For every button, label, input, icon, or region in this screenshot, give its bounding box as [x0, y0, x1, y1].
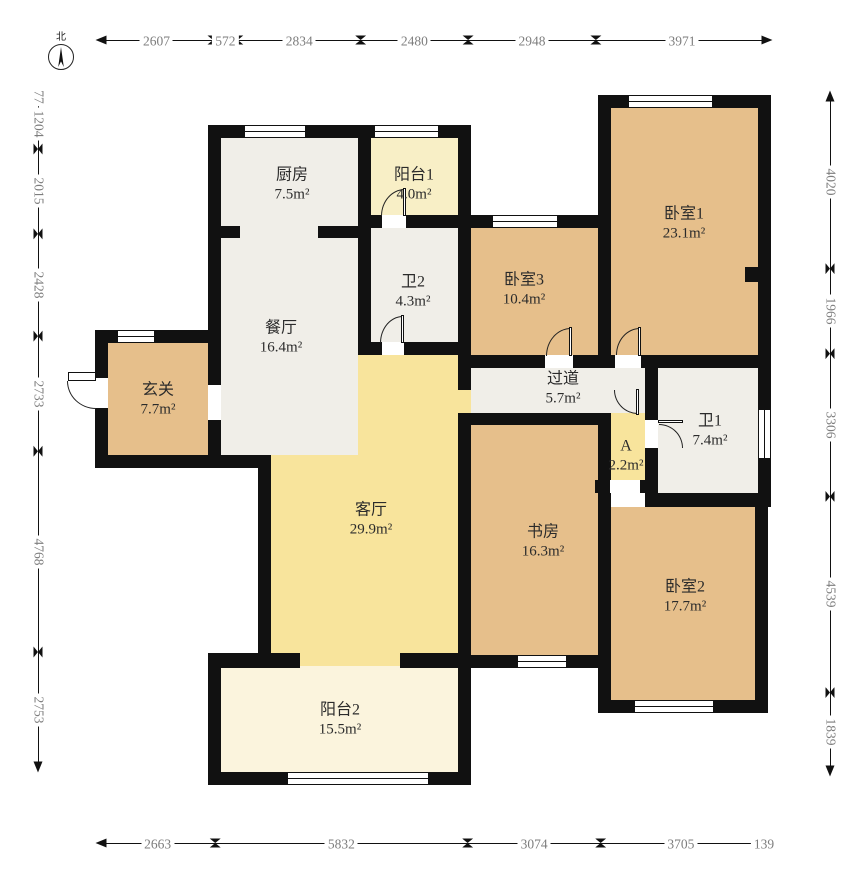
dimension-label-left-0: 77: [31, 87, 47, 107]
room-room-a-area: 2.2m²: [609, 457, 644, 476]
wall-opening: [545, 355, 573, 368]
dimension-label-bottom-3: 3705: [664, 836, 697, 852]
wall: [221, 226, 240, 238]
window-icon: [635, 700, 713, 713]
corridor-a-door-leaf-icon: [636, 389, 639, 415]
room-living-label: 客厅29.9m²: [350, 501, 392, 540]
room-living-name: 客厅: [350, 501, 392, 521]
room-bath1-label: 卫17.4m²: [693, 412, 728, 451]
room-balcony2-label: 阳台215.5m²: [319, 701, 361, 740]
room-bedroom3-area: 10.4m²: [503, 291, 545, 310]
wall-opening: [208, 385, 221, 420]
dimension-label-bottom-4: 139: [751, 836, 777, 852]
room-study-label: 书房16.3m²: [522, 523, 564, 562]
room-bedroom1-name: 卧室1: [663, 205, 705, 225]
wall: [95, 330, 221, 343]
room-bedroom2-label: 卧室217.7m²: [664, 578, 706, 617]
room-bedroom2-name: 卧室2: [664, 578, 706, 598]
floor-plan-canvas: 厨房7.5m²阳台14.0m²卫24.3m²餐厅16.4m²玄关7.7m²卧室3…: [0, 0, 868, 880]
dimension-label-bottom-0: 2663: [141, 836, 174, 852]
room-hallway-label: 玄关7.7m²: [141, 381, 176, 420]
room-bedroom3-label: 卧室310.4m²: [503, 271, 545, 310]
room-balcony1-label: 阳台14.0m²: [394, 166, 434, 205]
dimension-label-left-5: 4768: [31, 535, 47, 568]
dimension-label-right-4: 1839: [823, 716, 839, 749]
window-icon: [758, 410, 771, 458]
wall: [95, 455, 221, 468]
room-kitchen-label: 厨房7.5m²: [275, 166, 310, 205]
window-icon: [493, 215, 557, 228]
dimension-label-right-3: 4539: [823, 578, 839, 611]
dimension-arrow-top-start: [96, 36, 107, 45]
room-living-floor: [358, 355, 458, 455]
room-living-floor: [271, 455, 458, 653]
wall-opening: [611, 493, 640, 507]
entrance-door-leaf-icon: [68, 372, 96, 381]
dimension-label-left-6: 2753: [31, 694, 47, 727]
room-study-area: 16.3m²: [522, 543, 564, 562]
window-icon: [118, 330, 154, 343]
wall: [645, 493, 771, 507]
dimension-arrow-right-end: [826, 766, 835, 777]
room-corridor-label: 过道5.7m²: [546, 370, 581, 409]
wall: [358, 138, 371, 355]
dimension-label-left-1: 1204: [31, 107, 47, 140]
wall: [358, 342, 471, 355]
dimension-arrow-top-end: [762, 36, 773, 45]
dimension-label-right-1: 1966: [823, 295, 839, 328]
wall: [458, 125, 471, 355]
wall: [258, 455, 271, 666]
room-room-a-label: A2.2m²: [609, 437, 644, 476]
room-bath1-area: 7.4m²: [693, 432, 728, 451]
room-balcony2-name: 阳台2: [319, 701, 361, 721]
room-bedroom1-label: 卧室123.1m²: [663, 205, 705, 244]
dimension-label-bottom-2: 3074: [518, 836, 551, 852]
room-balcony2-area: 15.5m²: [319, 721, 361, 740]
wall: [208, 653, 300, 668]
dimension-arrow-bottom-start: [96, 839, 107, 848]
entrance-door-swing-icon: [67, 381, 96, 409]
room-bedroom1-area: 23.1m²: [663, 225, 705, 244]
dimension-label-bottom-1: 5832: [325, 836, 358, 852]
dimension-label-right-0: 4020: [823, 165, 839, 198]
dimension-label-top-1: 572: [212, 33, 238, 49]
room-bath2-name: 卫2: [396, 273, 431, 293]
wall-opening: [610, 480, 640, 493]
wall: [318, 226, 358, 238]
wall: [598, 95, 611, 368]
dimension-label-top-4: 2948: [515, 33, 548, 49]
room-bedroom2-area: 17.7m²: [664, 598, 706, 617]
room-kitchen-area: 7.5m²: [275, 186, 310, 205]
dimension-label-top-2: 2834: [283, 33, 316, 49]
dimension-arrow-left-end: [34, 762, 43, 773]
wall-opening: [645, 420, 658, 448]
room-corridor-area: 5.7m²: [546, 390, 581, 409]
window-icon: [629, 95, 712, 108]
window-icon: [518, 655, 566, 668]
window-icon: [375, 125, 438, 138]
wall-opening: [615, 355, 641, 368]
room-room-a-floor: [458, 390, 471, 413]
bath2-door-leaf-icon: [401, 315, 404, 343]
bedroom3-door-leaf-icon: [569, 327, 572, 356]
room-bath2-area: 4.3m²: [396, 293, 431, 312]
window-icon: [245, 125, 305, 138]
dimension-label-right-2: 3306: [823, 409, 839, 442]
room-hallway-area: 7.7m²: [141, 401, 176, 420]
room-study-name: 书房: [522, 523, 564, 543]
room-living-area: 29.9m²: [350, 521, 392, 540]
wall: [458, 368, 471, 390]
dimension-label-top-5: 3971: [665, 33, 698, 49]
window-icon: [288, 772, 428, 785]
dimension-arrow-right-start: [826, 91, 835, 102]
wall: [208, 653, 221, 785]
room-dining-name: 餐厅: [260, 319, 302, 339]
wall-opening: [382, 342, 404, 355]
room-bath2-label: 卫24.3m²: [396, 273, 431, 312]
room-dining-area: 16.4m²: [260, 339, 302, 358]
wall: [755, 493, 768, 713]
dimension-label-left-3: 2428: [31, 268, 47, 301]
dimension-label-left-2: 2015: [31, 175, 47, 208]
dimension-label-top-3: 2480: [398, 33, 431, 49]
room-corridor-name: 过道: [546, 370, 581, 390]
wall: [458, 653, 471, 785]
room-room-a-name: A: [609, 437, 644, 457]
floor-plan-page: 北 厨房7.5m²阳台14.0m²卫24.3m²餐厅16.4m²玄关7.7m²卧…: [0, 0, 868, 880]
room-bedroom3-name: 卧室3: [503, 271, 545, 291]
wall: [458, 425, 471, 668]
wall: [458, 413, 608, 425]
room-dining-label: 餐厅16.4m²: [260, 319, 302, 358]
room-kitchen-name: 厨房: [275, 166, 310, 186]
dimension-label-top-0: 2607: [140, 33, 173, 49]
bath1-door-leaf-icon: [658, 420, 683, 423]
wall-opening: [382, 215, 406, 228]
wall-opening: [95, 378, 108, 408]
wall: [358, 215, 471, 228]
room-hallway-name: 玄关: [141, 381, 176, 401]
dimension-label-left-4: 2733: [31, 377, 47, 410]
bedroom1-door-leaf-icon: [638, 327, 641, 356]
room-balcony1-area: 4.0m²: [394, 186, 434, 205]
room-balcony1-name: 阳台1: [394, 166, 434, 186]
wall: [745, 267, 758, 282]
room-bath1-name: 卫1: [693, 412, 728, 432]
